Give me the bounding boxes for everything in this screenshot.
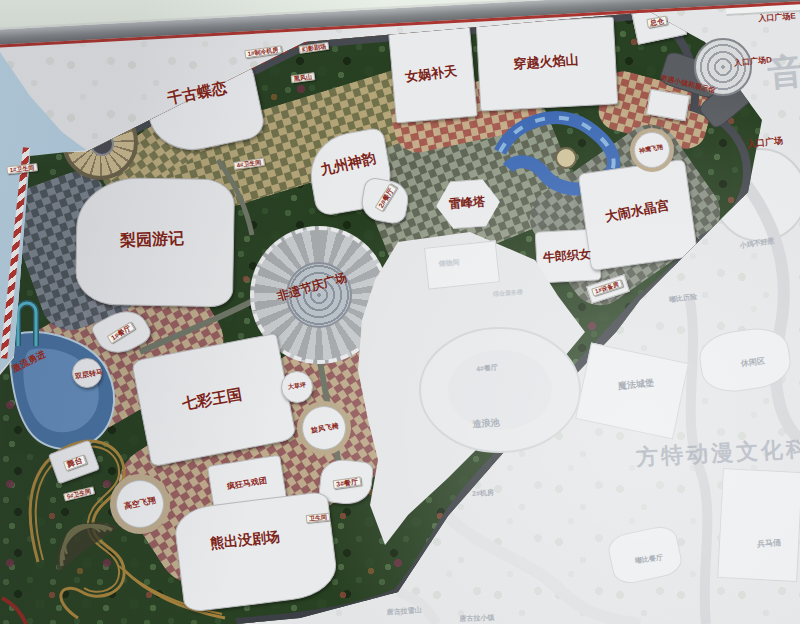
label-leifengta: 雷峰塔 <box>449 195 486 210</box>
label-rukou-guangchang-e: 入口广场E <box>758 13 796 24</box>
label-feiyi-jieqing-guangchang: 非遗节庆广场 <box>276 271 349 303</box>
label-dacaoping: 大草坪 <box>288 382 307 391</box>
label-shenying-feixiang: 神鹰飞翔 <box>639 144 664 154</box>
label-shebeifang: 1#设备房 <box>591 279 623 296</box>
label-zongcang: 总仓 <box>646 16 667 29</box>
label-zhilengjifang: 1#制冷机房 <box>244 45 281 58</box>
label-canting-4: 4#餐厅 <box>476 363 498 373</box>
label-huanying-juchang: 幻影剧场 <box>299 42 330 54</box>
label-tanggula-xiaozhen: 唐古拉小镇 <box>459 614 494 623</box>
label-tanggula-xueshan: 唐古拉雪山 <box>386 606 421 616</box>
label-canting-3: 3#餐厅 <box>333 476 362 489</box>
label-jifang-2: 2#机房 <box>472 489 494 497</box>
label-canting-1: 1#餐厅 <box>107 322 136 345</box>
label-xiongchumo-juchang: 熊出没剧场 <box>209 529 280 551</box>
label-dubi-lixian: 嘟比历险 <box>669 293 698 304</box>
label-zonghe-fuwulou: 综合服务楼 <box>493 289 523 297</box>
label-xiaoji-buhaore: 小鸡不好惹 <box>739 237 775 250</box>
label-niulang-zhinv: 牛郎织女 <box>543 248 592 265</box>
label-fengkuang-maxituan: 疯狂马戏团 <box>227 477 268 492</box>
label-xiuxianqu: 休闲区 <box>741 357 766 368</box>
map-labels-layer: 千古蝶恋女娲补天穿越火焰山九州神韵梨园游记七彩王国熊出没剧场大闹水晶宫牛郎织女雷… <box>0 0 800 624</box>
label-chuanyue-huoyanshan: 穿越火焰山 <box>513 53 579 71</box>
label-qiangu-dielian: 千古蝶恋 <box>166 80 228 107</box>
label-danao-shuijinggong: 大闹水晶宫 <box>604 198 670 224</box>
label-chuwujian: 储物间 <box>438 259 459 268</box>
label-qicai-wangguo: 七彩王国 <box>181 386 243 412</box>
label-mofa-chengbao: 魔法城堡 <box>618 378 655 391</box>
label-weishengjian-1: 1#卫生间 <box>6 163 37 174</box>
label-heifengshan: 黑风山 <box>291 72 316 84</box>
label-zaolangchi: 造浪池 <box>472 418 500 429</box>
label-jiuzhou-shenyun: 九州神韵 <box>319 151 377 178</box>
label-weishengjian-6: 卫生间 <box>306 513 331 524</box>
label-dubi-canting: 嘟比餐厅 <box>635 554 664 565</box>
label-weishengjian-5: 5#卫生间 <box>63 486 95 501</box>
label-shuangceng-zhuanma: 双层转马 <box>75 368 104 380</box>
label-jiliu-yongjin: 激流勇进 <box>11 350 47 375</box>
label-nuwa-butian: 女娲补天 <box>404 64 457 84</box>
label-liyuan-youji: 梨园游记 <box>120 230 185 249</box>
label-fangte-watermark: 方特动漫文化科技 <box>636 435 800 469</box>
label-qiyu-xiaozhen-zhanshiguan: 奇遇小镇和展示馆 <box>660 74 716 95</box>
label-canting-2: 2#餐厅 <box>375 184 398 213</box>
label-weishengjian-4: 4#卫生间 <box>233 158 265 170</box>
label-bingmayong: 兵马俑 <box>757 539 782 549</box>
label-wutai: 舞台 <box>63 454 87 471</box>
park-map-photo: 千古蝶恋女娲补天穿越火焰山九州神韵梨园游记七彩王国熊出没剧场大闹水晶宫牛郎织女雷… <box>0 0 800 624</box>
label-xuanfeng-feiyi: 旋风飞椅 <box>311 422 340 434</box>
label-gaokong-feixiang: 高空飞翔 <box>123 497 156 512</box>
label-rukou-guangchang: 入口广场 <box>747 136 784 149</box>
